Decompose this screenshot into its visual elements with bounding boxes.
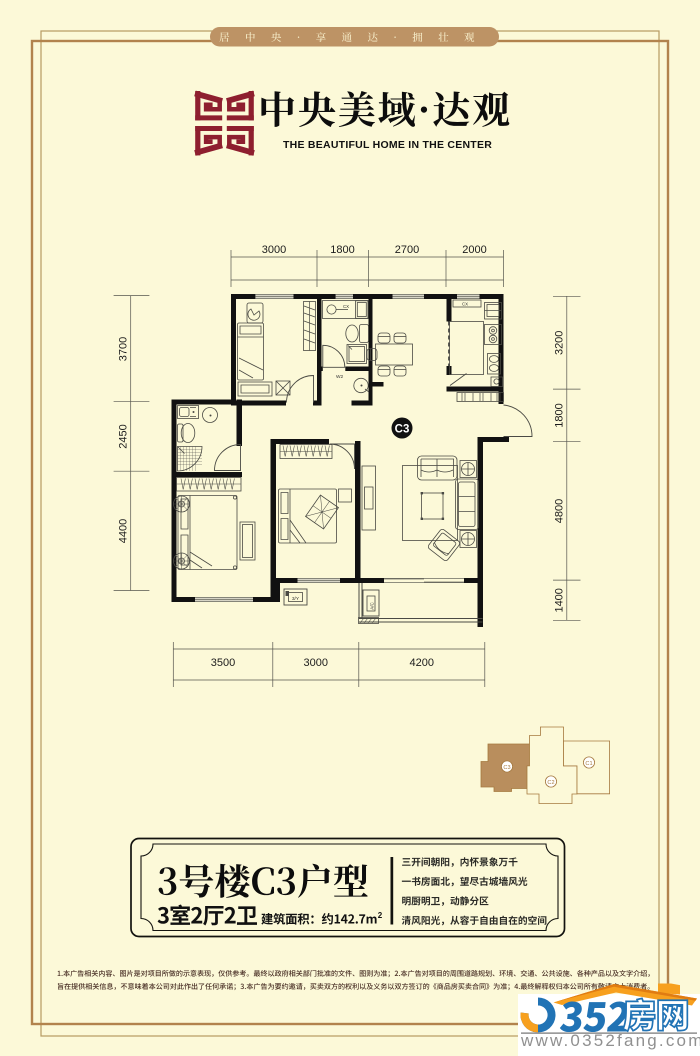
- svg-text:THE BEAUTIFUL HOME IN THE CENT: THE BEAUTIFUL HOME IN THE CENTER: [283, 139, 492, 151]
- svg-text:3700: 3700: [118, 337, 130, 361]
- svg-text:3/Y: 3/Y: [292, 596, 300, 602]
- svg-text:3200: 3200: [554, 331, 566, 355]
- svg-text:www.0352fang.com: www.0352fang.com: [520, 1031, 700, 1050]
- svg-text:2700: 2700: [395, 244, 419, 256]
- svg-text:4400: 4400: [118, 519, 130, 543]
- svg-text:C1: C1: [585, 761, 592, 767]
- svg-text:2000: 2000: [462, 244, 486, 256]
- svg-text:W2: W2: [336, 374, 344, 380]
- svg-text:3500: 3500: [211, 657, 235, 669]
- svg-text:3000: 3000: [262, 244, 286, 256]
- svg-text:1800: 1800: [330, 244, 354, 256]
- svg-text:C3: C3: [503, 765, 510, 771]
- svg-text:C2: C2: [547, 780, 554, 786]
- svg-text:1800: 1800: [554, 403, 566, 427]
- svg-text:2450: 2450: [118, 424, 130, 448]
- svg-text:4200: 4200: [410, 657, 434, 669]
- svg-text:CX: CX: [343, 304, 349, 309]
- svg-text:3000: 3000: [304, 657, 328, 669]
- svg-text:1400: 1400: [554, 588, 566, 612]
- svg-text:A/C: A/C: [370, 602, 375, 610]
- svg-text:4800: 4800: [554, 499, 566, 523]
- svg-text:C3: C3: [395, 423, 410, 435]
- svg-text:CX: CX: [462, 302, 468, 307]
- svg-text:2: 2: [378, 911, 383, 920]
